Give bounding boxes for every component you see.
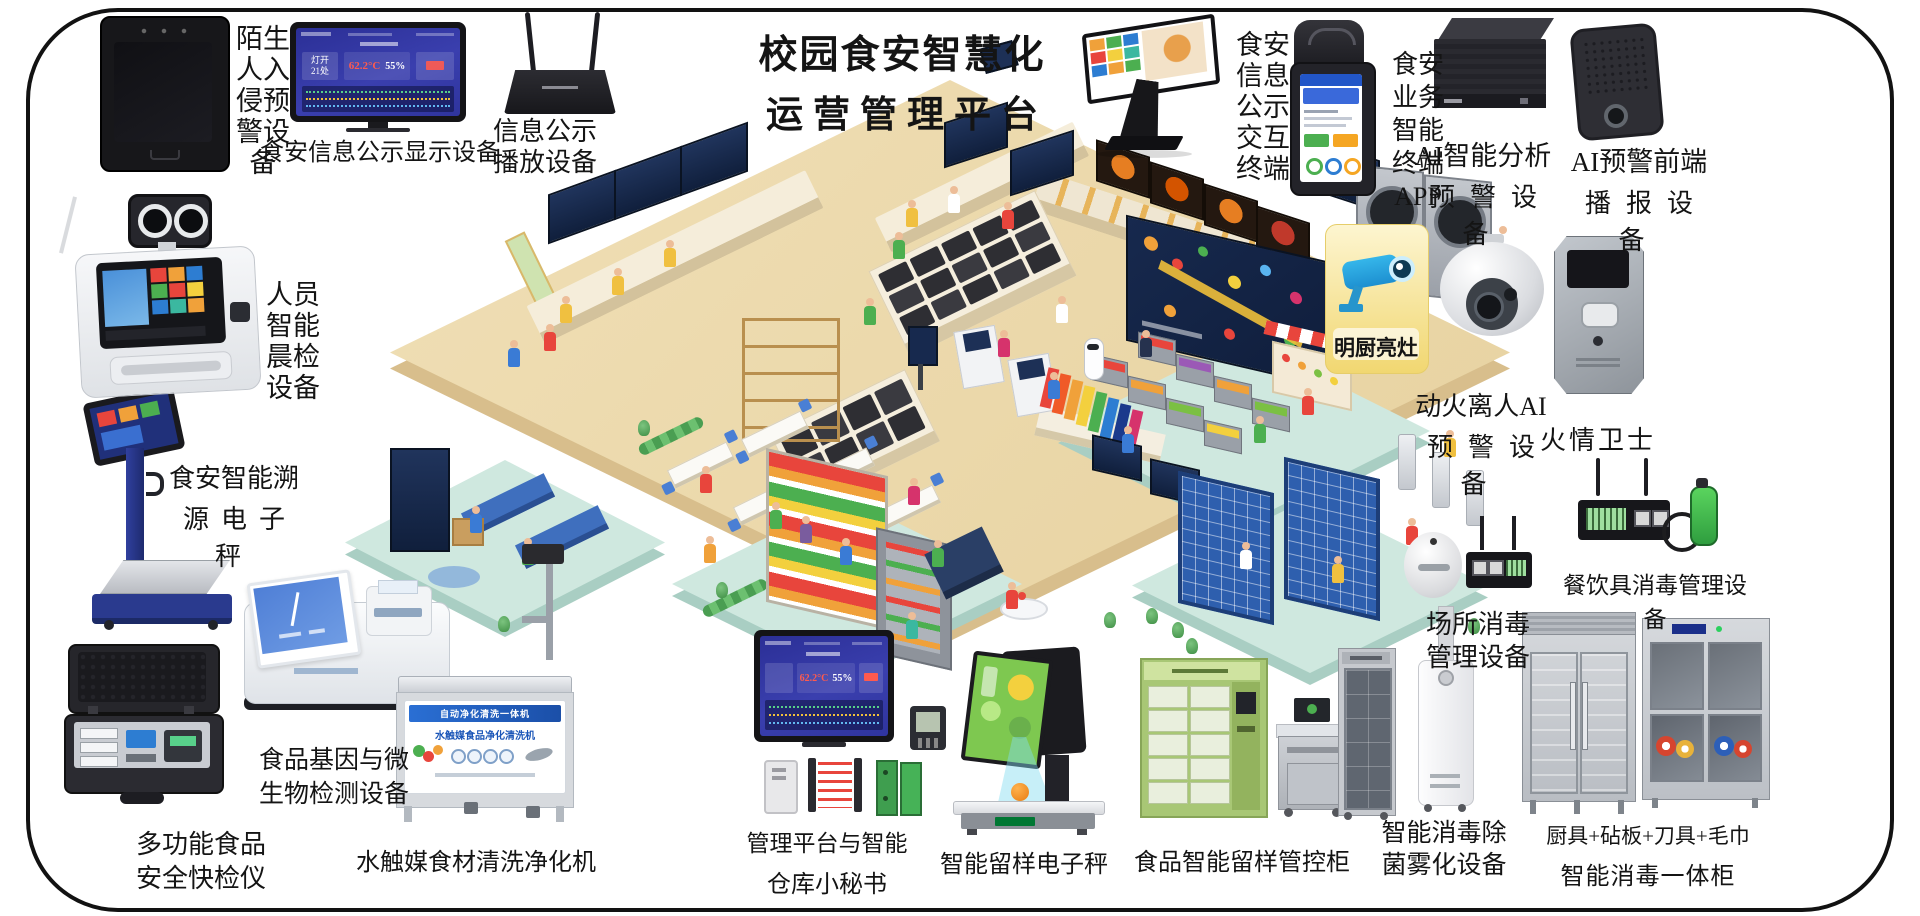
- standing-kiosk-screen: [908, 326, 938, 366]
- device-screen: [96, 257, 226, 349]
- instrument-deck: [74, 722, 210, 768]
- person-figure: [508, 340, 520, 367]
- plant: [1104, 612, 1116, 628]
- tableware-disinfect-devices: [1578, 456, 1728, 560]
- ai-analysis-line2: 预警设备: [1400, 177, 1566, 251]
- ethernet-port-icon: [1634, 510, 1651, 527]
- ai-broadcast-line1: AI预警前端: [1556, 140, 1722, 179]
- fog-disinfect-label: 智能消毒除 菌雾化设备: [1378, 818, 1510, 882]
- plant: [1146, 608, 1158, 624]
- temp-card: 62.2°C 55%: [344, 52, 410, 80]
- ai-analysis-label: AI智能分析 预警设备: [1400, 134, 1566, 251]
- towel-roll-blue: [1714, 736, 1734, 756]
- brand-mark: [294, 668, 358, 674]
- id-bracket-icon: [150, 150, 180, 160]
- sprayer-pipe: [546, 564, 553, 660]
- router-logo: [542, 86, 578, 89]
- person-figure: [908, 478, 920, 505]
- person-figure: [1332, 556, 1344, 583]
- place-disinfect-line2: 管理设备: [1420, 641, 1536, 674]
- kiosk-shadow: [1096, 150, 1192, 158]
- ai-broadcast-line2: 播报设备: [1556, 183, 1722, 257]
- device-vents: [1576, 358, 1620, 370]
- morning-check-label: 人员智能晨检设备: [262, 280, 324, 404]
- person-figure: [948, 186, 960, 213]
- sample-scale-label: 智能留样电子秤: [938, 844, 1110, 879]
- antenna-icon: [59, 196, 77, 253]
- title-line1: 校园食安智慧化: [752, 24, 1052, 80]
- person-figure: [1006, 582, 1018, 609]
- locker-window: [1148, 734, 1188, 756]
- cctv-lens-icon: [1389, 256, 1415, 282]
- person-figure: [840, 538, 852, 565]
- antenna-icon: [1644, 458, 1648, 496]
- gene-test-line2: 生物检测设备: [252, 778, 416, 812]
- box-front: [1434, 39, 1546, 95]
- sprayer-head: [522, 544, 564, 564]
- lamp-label: 灯开: [302, 54, 338, 66]
- tower-vent: [1430, 784, 1460, 788]
- person-figure: [906, 612, 918, 639]
- chart-panel: [302, 86, 454, 112]
- pos-screen: [1300, 74, 1362, 182]
- humidity-value: 55%: [385, 61, 405, 72]
- person-figure: [1140, 330, 1152, 357]
- person-figure: [1240, 542, 1252, 569]
- antenna-icon: [1596, 458, 1600, 496]
- app-terminal-line2: 业务: [1386, 81, 1450, 114]
- pcb-board-sensor: [900, 762, 922, 816]
- person-figure: [770, 502, 782, 529]
- gene-test-label: 食品基因与微 生物检测设备: [252, 744, 416, 812]
- alert-card: [416, 52, 454, 80]
- cabinet-leg: [1652, 798, 1658, 808]
- interactive-kiosk: [1082, 20, 1222, 156]
- router-green-panel: [1506, 560, 1526, 576]
- ai-broadcast-label: AI预警前端 播报设备: [1556, 140, 1722, 257]
- scale-column: [1045, 755, 1069, 803]
- title-line2: 运营管理平台: [752, 84, 1052, 138]
- person-figure: [664, 240, 676, 267]
- sprayer-bend: [522, 616, 548, 623]
- kiosk-base: [1104, 136, 1183, 150]
- sample-locker-green: [1140, 658, 1264, 818]
- cabinet-leg: [1530, 800, 1536, 814]
- fog-disinfect-line2: 菌雾化设备: [1378, 850, 1510, 882]
- fire-sentinel-label: 火情卫士: [1538, 420, 1658, 457]
- temp-value: 62.2°C: [800, 673, 829, 684]
- lamp-card: 灯开 21处: [302, 52, 338, 80]
- locker-window: [1190, 758, 1230, 780]
- info-player-line1: 信息公示: [490, 116, 600, 147]
- info-player-label: 信息公示 播放设备: [490, 116, 600, 178]
- cabinet-leg: [1574, 800, 1580, 814]
- person-figure: [1122, 426, 1134, 453]
- place-disinfect-label: 场所消毒 管理设备: [1420, 608, 1536, 674]
- person-figure: [560, 296, 572, 323]
- caster-wheel: [1284, 808, 1293, 817]
- rapid-test-line2: 安全快检仪: [118, 862, 284, 896]
- locker-window: [1148, 782, 1188, 804]
- scale-pole: [126, 448, 144, 578]
- sensor-square: [230, 302, 250, 322]
- caster-wheel: [1424, 804, 1432, 812]
- speaker-grille-icon: [1582, 35, 1649, 96]
- interactive-kiosk-label: 食安信息公示交互终端: [1232, 30, 1294, 185]
- person-figure: [800, 516, 812, 543]
- pcb-board-sensor: [876, 760, 898, 816]
- towel-roll-red: [1656, 736, 1676, 756]
- camera-lens-small: [1504, 288, 1517, 301]
- fog-disinfect-line1: 智能消毒除: [1378, 818, 1510, 850]
- diagram-canvas: 校园食安智慧化 运营管理平台 陌生人入侵预警设备 灯开 21处 62.2°C 5…: [0, 0, 1920, 916]
- ai-analysis-line1: AI智能分析: [1400, 134, 1566, 173]
- plant: [716, 582, 728, 598]
- trace-scale-line2: 源电子秤: [164, 499, 304, 573]
- locker-control-column: [1232, 682, 1260, 810]
- relay-box-sensor: [764, 760, 798, 814]
- cctv-lens-center: [1396, 263, 1403, 270]
- person-figure: [1056, 296, 1068, 323]
- combo-cabinet-line1: 厨具+砧板+刀具+毛巾: [1534, 820, 1762, 850]
- disinfect-cabinet-four-door: [1642, 618, 1768, 808]
- sample-storage-cabinet: [1338, 648, 1394, 820]
- device-screen: [114, 42, 212, 142]
- menu-board: [548, 170, 616, 245]
- person-figure: [1048, 372, 1060, 399]
- place-disinfect-line1: 场所消毒: [1420, 608, 1536, 641]
- probe-stick: [1690, 486, 1718, 546]
- light-curtain-beams: [818, 762, 852, 808]
- ai-analysis-box: [1434, 18, 1558, 112]
- scale-foot: [967, 829, 977, 835]
- person-figure: [700, 466, 712, 493]
- person-figure: [544, 324, 556, 351]
- lamp-count: 21处: [302, 66, 338, 77]
- fire-sentinel-device: [1554, 236, 1642, 392]
- water-catalyst-washer: 自动净化清洗一体机 水触媒食品净化清洗机: [394, 540, 584, 824]
- washer-banner1-strip: 自动净化清洗一体机: [409, 705, 561, 722]
- place-disinfect-devices: [1404, 516, 1534, 604]
- plant: [638, 420, 650, 436]
- app-pos-terminal: [1290, 20, 1372, 192]
- standing-board: [390, 448, 450, 552]
- caster-wheel: [1458, 804, 1466, 812]
- device-button: [1593, 336, 1603, 346]
- cabinet-header: [1342, 652, 1390, 664]
- fire-ai-line1: 动火离人AI: [1398, 386, 1564, 423]
- cabinet-leg: [1618, 800, 1624, 814]
- mgmt-platform-label: 管理平台与智能 仓库小秘书: [742, 824, 912, 899]
- gene-test-line1: 食品基因与微: [252, 744, 416, 778]
- person-figure: [1302, 388, 1314, 415]
- light-curtain-sensor: [854, 758, 862, 812]
- door-handle: [1570, 682, 1576, 750]
- person-figure: [998, 330, 1010, 357]
- sample-cabinet-label: 食品智能留样管控柜: [1122, 842, 1362, 877]
- locker-window: [1148, 758, 1188, 780]
- info-display-monitor: 灯开 21处 62.2°C 55%: [290, 22, 466, 132]
- vending-machine-panel: [1178, 471, 1274, 625]
- morning-check-device: [54, 190, 266, 402]
- person-figure: [893, 232, 905, 259]
- locker-window: [1190, 734, 1230, 756]
- disinfect-cabinet-glass: [1522, 612, 1634, 814]
- mgmt-platform-line1: 管理平台与智能: [742, 824, 912, 858]
- washer-banner2: 水触媒食品净化清洗机: [405, 727, 565, 742]
- cabinet-leg: [1752, 798, 1758, 808]
- caster-wheel: [208, 620, 218, 630]
- plant: [1172, 622, 1184, 638]
- app-terminal-line1: 食安: [1386, 48, 1450, 81]
- pole-hook: [146, 472, 164, 496]
- locker-window: [1148, 710, 1188, 732]
- box-top: [1438, 18, 1554, 40]
- antenna-icon: [1480, 516, 1484, 550]
- vending-machine-panel: [1284, 457, 1380, 621]
- person-figure: [864, 298, 876, 325]
- person-figure: [932, 540, 944, 567]
- person-figure: [906, 200, 918, 227]
- glass-window: [1708, 642, 1762, 710]
- door-handle: [1582, 682, 1588, 750]
- info-player-line2: 播放设备: [490, 147, 600, 178]
- printer-arc: [1308, 28, 1356, 45]
- market-shelf: [766, 448, 888, 630]
- rapid-test-case: [64, 644, 220, 814]
- caster-wheel: [104, 620, 114, 630]
- box-base: [1434, 94, 1546, 108]
- standing-kiosk-pole: [918, 364, 923, 390]
- analyzer-screen: [247, 569, 362, 669]
- ai-broadcast-speaker: [1570, 24, 1662, 140]
- antenna-icon: [589, 12, 600, 74]
- rapid-test-line1: 多功能食品: [118, 828, 284, 862]
- case-foam: [78, 652, 206, 702]
- light-curtain-sensor: [808, 758, 816, 812]
- probe-cap: [1696, 478, 1708, 488]
- locker-header: [1144, 662, 1260, 680]
- antenna-icon: [1512, 516, 1516, 550]
- combo-cabinet-label: 厨具+砧板+刀具+毛巾 智能消毒一体柜: [1534, 820, 1762, 891]
- washer-valve: [526, 806, 540, 818]
- scale-foot: [1077, 829, 1087, 835]
- towel-roll-red: [1734, 740, 1752, 758]
- locker-window: [1190, 686, 1230, 708]
- laptop-screen: [1294, 698, 1330, 722]
- locker-window: [1148, 686, 1188, 708]
- plant: [1186, 638, 1198, 654]
- trace-scale-label: 食安智能溯 源电子秤: [164, 458, 304, 573]
- router-green-panel: [1586, 508, 1626, 530]
- orange-fruit: [1011, 783, 1029, 801]
- camera-dots-icon: [134, 28, 192, 34]
- camera-eye-icon: [138, 204, 172, 238]
- menu-board: [614, 146, 682, 221]
- egg-sensor-dot: [1430, 538, 1437, 545]
- bright-kitchen-label: 明厨亮灶: [1331, 332, 1421, 362]
- antenna-icon: [525, 12, 536, 74]
- ethernet-port-icon: [1472, 560, 1488, 576]
- person-figure: [612, 268, 624, 295]
- info-display-label: 食安信息公示显示设备: [258, 132, 502, 167]
- mgmt-platform-line2: 仓库小秘书: [742, 864, 912, 899]
- scale-platform-body: [961, 813, 1095, 829]
- washer-banner1: 自动净化清洗一体机: [440, 707, 530, 720]
- speaker-knob-icon: [1604, 104, 1628, 128]
- cctv-base-icon: [1339, 304, 1363, 312]
- person-figure: [470, 506, 482, 533]
- tower-vent: [1430, 774, 1460, 778]
- service-robot-visor: [1087, 344, 1099, 350]
- rapid-test-label: 多功能食品 安全快检仪: [118, 828, 284, 896]
- washer-label: 水触媒食材清洗净化机: [344, 842, 608, 877]
- washer-leg: [556, 806, 564, 822]
- washer-valve: [464, 802, 478, 814]
- camera-eye-icon: [174, 204, 208, 238]
- temp-card: 62.2°C 55%: [797, 663, 855, 693]
- combo-cabinet-line2: 智能消毒一体柜: [1534, 856, 1762, 891]
- wall-gauge-sensor: [910, 706, 946, 750]
- camera-lens-large: [1474, 292, 1504, 322]
- sample-retention-scale: [945, 645, 1115, 825]
- tableware-disinfect-label: 餐饮具消毒管理设备: [1552, 566, 1758, 634]
- caster-wheel: [1344, 812, 1352, 820]
- warehouse-sensor-set: [760, 706, 956, 818]
- scale-ad-screen: [961, 651, 1054, 770]
- washer-front-panel: 自动净化清洗一体机 水触媒食品净化清洗机: [404, 700, 566, 794]
- locker-window: [1190, 710, 1230, 732]
- temp-value: 62.2°C: [349, 60, 381, 72]
- towel-roll-yellow: [1676, 740, 1694, 758]
- trace-scale-line1: 食安智能溯: [164, 458, 304, 495]
- person-figure: [704, 536, 716, 563]
- table-item: [1018, 592, 1026, 600]
- glass-window: [1650, 642, 1704, 710]
- dashboard-screen: 灯开 21处 62.2°C 55%: [296, 28, 460, 116]
- router-body: [504, 70, 616, 114]
- device-slot: [1581, 302, 1619, 328]
- person-figure: [1002, 202, 1014, 229]
- person-figure: [1254, 416, 1266, 443]
- cabinet-glass: [1344, 668, 1392, 810]
- locker-window: [1190, 782, 1230, 804]
- ethernet-port-icon: [1488, 560, 1504, 576]
- stranger-intrusion-device: [100, 16, 226, 168]
- platform-title: 校园食安智慧化 运营管理平台: [752, 24, 1052, 138]
- info-player-router: [504, 12, 616, 116]
- humidity-value: 55%: [832, 673, 852, 684]
- egg-sensor-slot: [1418, 564, 1450, 571]
- case-handle: [120, 792, 164, 804]
